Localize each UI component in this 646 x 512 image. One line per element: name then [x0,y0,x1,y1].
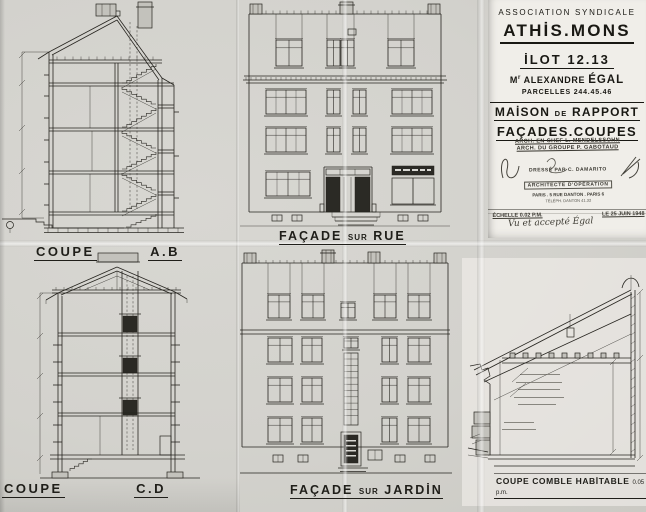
label-coupe-comble-title: COUPE COMBLE HABİTABLE [496,476,629,486]
label-coupe-ab: COUPE A.B [34,244,182,261]
title-block: ASSOCIATION SYNDICALE ATHİS.MONS İLOT 12… [490,4,644,141]
label-facade-rue: FAÇADE SUR RUE [279,229,406,245]
label-facade-rue-word2: SUR [348,233,368,242]
label-facade-rue-word3: RUE [373,229,405,243]
label-coupe-comble: COUPE COMBLE HABİTABLE 0.05 p.m. [494,473,646,499]
label-facade-jardin-word1: FAÇADE [290,483,353,497]
coupe-ab-drawing [0,0,240,244]
rapport-word: RAPPORT [572,105,639,119]
fold-crease-vertical-2 [342,0,348,512]
owner-prefix: M [510,75,518,85]
label-coupe-ab-ref: A.B [148,244,182,261]
stamp-bottom-rule [488,209,646,210]
label-coupe-cd-word: COUPE [2,481,65,498]
label-facade-jardin: FAÇADE SUR JARDİN [290,483,443,499]
signature-marks [495,146,645,192]
city-title: ATHİS.MONS [500,20,633,44]
ilot-line: İLOT 12.13 [520,52,614,69]
owner-surname: ÉGAL [588,74,624,86]
de-word: DE [555,109,568,118]
parcelles-line: PARCELLES 244.45.46 [490,89,644,96]
label-coupe-cd: COUPE C.D [2,481,168,498]
association-line: ASSOCIATION SYNDICALE [490,8,644,17]
label-coupe-cd-ref: C.D [134,481,168,498]
coupe-comble-drawing [468,262,646,480]
owner-name: ALEXANDRE [524,75,585,85]
coupe-cd-drawing [0,250,240,494]
maison-word: MAİSON [495,105,550,119]
sheet-left-edge-shadow [0,0,5,512]
owner-line: Mr ALEXANDRE ÉGAL [490,74,644,86]
fold-crease-vertical-1 [236,0,239,512]
owner-prefix-sup: r [518,75,521,81]
label-facade-rue-word1: FAÇADE [279,229,342,243]
fold-crease-vertical-3 [477,0,485,512]
maison-de-rapport-line: MAİSON DE RAPPORT [494,104,640,121]
stamp-phone-line: TÉLÉPH. DANTON 41.32 [492,197,644,204]
drawing-sheet: COUPE A.B FAÇADE SUR RUE COUPE C.D FAÇAD… [0,0,646,512]
stamp-bottom-rule-2 [488,213,646,214]
label-coupe-ab-word: COUPE [34,244,97,261]
label-facade-jardin-word2: SUR [359,487,379,496]
label-facade-jardin-word3: JARDİN [384,483,443,497]
